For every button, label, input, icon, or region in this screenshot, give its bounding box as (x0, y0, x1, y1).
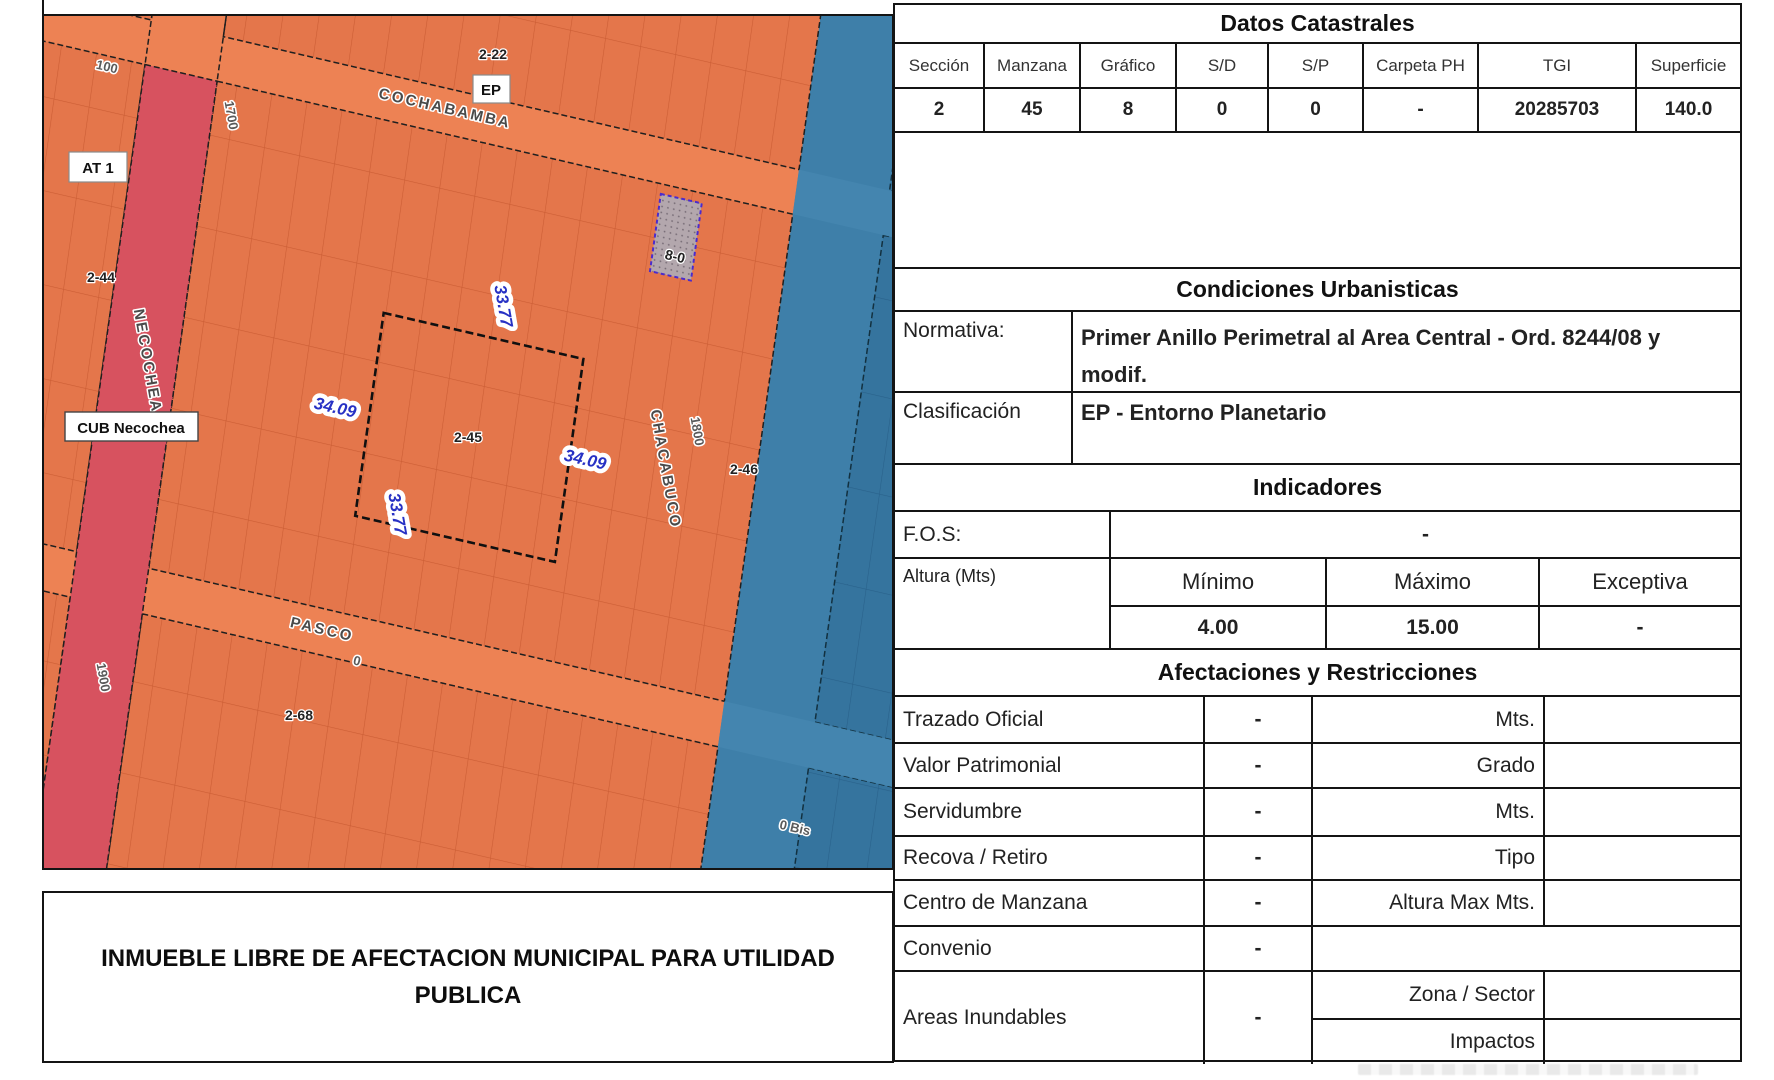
areas-zona-sector-label: Zona / Sector (1313, 972, 1545, 1018)
clasificacion-row: Clasificación EP - Entorno Planetario (895, 391, 1740, 463)
block-label-2-45: 2-45 (454, 429, 482, 445)
recova-extra (1545, 837, 1740, 879)
clasificacion-label: Clasificación (895, 393, 1073, 463)
col-grafico: Gráfico (1081, 44, 1177, 87)
areas-inundables-block: Areas Inundables - Zona / Sector Impacto… (895, 970, 1740, 1064)
cadastral-map: 100 1700 2-22 EP COCHABAMBA AT 1 8-0 2-4… (42, 14, 894, 870)
val-superficie: 140.0 (1637, 89, 1740, 131)
afectacion-row: Centro de Manzana - Altura Max Mts. (895, 879, 1740, 925)
afectacion-row: Valor Patrimonial - Grado (895, 742, 1740, 787)
map-canvas: 100 1700 2-22 EP COCHABAMBA AT 1 8-0 2-4… (44, 16, 892, 868)
centro-manzana-extra (1545, 881, 1740, 925)
block-label-2-68: 2-68 (285, 707, 313, 723)
centro-manzana-unit: Altura Max Mts. (1313, 881, 1545, 925)
servidumbre-unit: Mts. (1313, 789, 1545, 835)
convenio-label: Convenio (895, 927, 1205, 970)
val-seccion: 2 (895, 89, 985, 131)
servidumbre-label: Servidumbre (895, 789, 1205, 835)
col-superficie: Superficie (1637, 44, 1740, 87)
afectacion-row: Convenio - (895, 925, 1740, 970)
val-sd: 0 (1177, 89, 1269, 131)
datos-value-row: 2 45 8 0 0 - 20285703 140.0 (895, 87, 1740, 131)
trazado-unit: Mts. (1313, 697, 1545, 742)
altura-minimo-header: Mínimo (1111, 559, 1327, 605)
trazado-label: Trazado Oficial (895, 697, 1205, 742)
centro-manzana-label: Centro de Manzana (895, 881, 1205, 925)
cub-necochea-box: CUB Necochea (65, 412, 198, 441)
col-manzana: Manzana (985, 44, 1081, 87)
areas-zona-sector-value (1545, 972, 1740, 1018)
altura-maximo-value: 15.00 (1327, 605, 1540, 648)
areas-impactos-label: Impactos (1313, 1018, 1545, 1064)
val-sp: 0 (1269, 89, 1364, 131)
afectaciones-title: Afectaciones y Restricciones (895, 650, 1740, 695)
col-sd: S/D (1177, 44, 1269, 87)
areas-value: - (1205, 972, 1313, 1064)
convenio-value: - (1205, 927, 1313, 970)
section-datos-catastrales: Datos Catastrales Sección Manzana Gráfic… (895, 5, 1740, 133)
col-carpeta-ph: Carpeta PH (1364, 44, 1479, 87)
urban-report-panel: Datos Catastrales Sección Manzana Gráfic… (893, 3, 1742, 1062)
recova-label: Recova / Retiro (895, 837, 1205, 879)
afectacion-row: Recova / Retiro - Tipo (895, 835, 1740, 879)
val-grafico: 8 (1081, 89, 1177, 131)
block-label-2-22: 2-22 (479, 46, 507, 62)
servidumbre-value: - (1205, 789, 1313, 835)
map-border-stub (42, 0, 44, 14)
indicadores-title: Indicadores (895, 465, 1740, 510)
fos-value: - (1111, 512, 1740, 557)
areas-impactos-value (1545, 1018, 1740, 1064)
convenio-extra (1313, 927, 1740, 970)
trazado-extra (1545, 697, 1740, 742)
clasificacion-value: EP - Entorno Planetario (1073, 393, 1740, 463)
altura-minimo-value: 4.00 (1111, 605, 1327, 648)
faint-watermark (1358, 1064, 1698, 1075)
afectacion-row: Trazado Oficial - Mts. (895, 695, 1740, 742)
ep-label: EP (481, 82, 501, 99)
block-label-2-44: 2-44 (87, 269, 115, 285)
patrimonial-extra (1545, 744, 1740, 787)
at1-label: AT 1 (82, 160, 113, 177)
recova-value: - (1205, 837, 1313, 879)
altura-block: Altura (Mts) Mínimo Máximo Exceptiva 4.0… (895, 557, 1740, 648)
fos-row: F.O.S: - (895, 510, 1740, 557)
trazado-value: - (1205, 697, 1313, 742)
normativa-row: Normativa: Primer Anillo Perimetral al A… (895, 310, 1740, 391)
patrimonial-label: Valor Patrimonial (895, 744, 1205, 787)
normativa-label: Normativa: (895, 312, 1073, 391)
afectacion-row: Servidumbre - Mts. (895, 787, 1740, 835)
col-seccion: Sección (895, 44, 985, 87)
condiciones-title: Condiciones Urbanisticas (895, 269, 1740, 310)
val-manzana: 45 (985, 89, 1081, 131)
datos-header-row: Sección Manzana Gráfico S/D S/P Carpeta … (895, 42, 1740, 87)
col-tgi: TGI (1479, 44, 1637, 87)
section-indicadores: Indicadores F.O.S: - Altura (Mts) Mínimo… (895, 465, 1740, 650)
altura-label: Altura (Mts) (895, 559, 1111, 648)
recova-unit: Tipo (1313, 837, 1545, 879)
panel-gap (895, 133, 1740, 267)
servidumbre-extra (1545, 789, 1740, 835)
cub-label: CUB Necochea (77, 420, 185, 437)
ep-zone-box: EP (473, 75, 510, 103)
normativa-value: Primer Anillo Perimetral al Area Central… (1073, 312, 1740, 391)
centro-manzana-value: - (1205, 881, 1313, 925)
patrimonial-value: - (1205, 744, 1313, 787)
altura-maximo-header: Máximo (1327, 559, 1540, 605)
areas-label: Areas Inundables (895, 972, 1205, 1064)
val-tgi: 20285703 (1479, 89, 1637, 131)
block-label-2-46: 2-46 (730, 461, 758, 477)
col-sp: S/P (1269, 44, 1364, 87)
patrimonial-unit: Grado (1313, 744, 1545, 787)
at1-zone-box: AT 1 (69, 152, 127, 182)
map-caption: INMUEBLE LIBRE DE AFECTACION MUNICIPAL P… (42, 891, 894, 1063)
altura-exceptiva-header: Exceptiva (1540, 559, 1740, 605)
section-afectaciones: Afectaciones y Restricciones Trazado Ofi… (895, 650, 1740, 1064)
altura-exceptiva-value: - (1540, 605, 1740, 648)
val-carpeta-ph: - (1364, 89, 1479, 131)
section-condiciones: Condiciones Urbanisticas Normativa: Prim… (895, 267, 1740, 465)
fos-label: F.O.S: (895, 512, 1111, 557)
datos-title: Datos Catastrales (895, 5, 1740, 42)
